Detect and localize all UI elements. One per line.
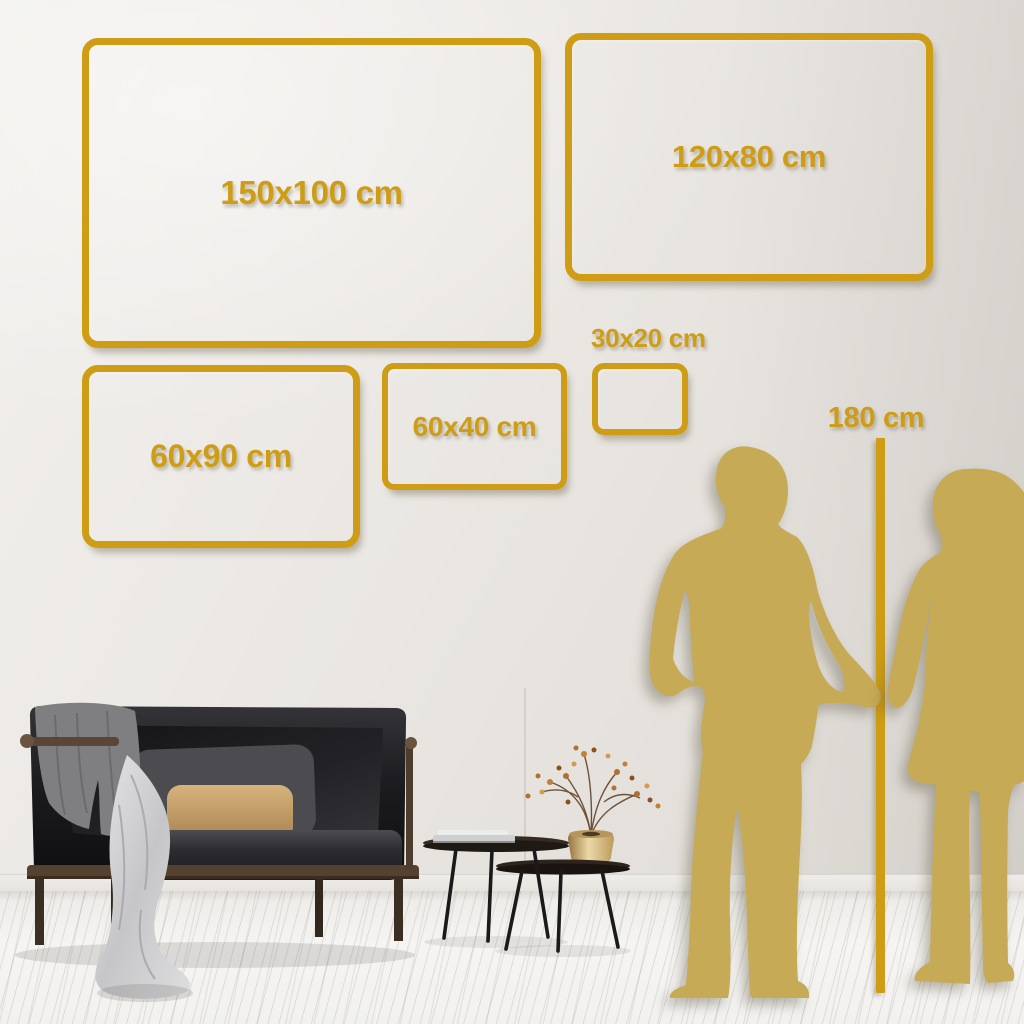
man-silhouette [648, 441, 892, 1001]
sofa-leg [35, 879, 44, 945]
plant-flowers [526, 746, 661, 809]
sofa-leg [394, 879, 403, 941]
size-label-30x20: 30x20 cm [591, 323, 706, 354]
size-label-120x80: 120x80 cm [672, 139, 826, 175]
books-stack [433, 830, 515, 843]
size-guide-scene: 150x100 cm 120x80 cm 60x90 cm 60x40 cm 3… [0, 0, 1024, 1024]
woman-silhouette [885, 465, 1024, 997]
sofa-back-dowel [23, 737, 119, 746]
size-frame-60x40: 60x40 cm [382, 363, 567, 490]
size-frame-150x100: 150x100 cm [82, 38, 541, 348]
sofa-leg [315, 879, 323, 937]
sofa [15, 695, 420, 1010]
height-ruler-label: 180 cm [815, 402, 937, 435]
size-frame-30x20 [592, 363, 688, 435]
size-label-60x90: 60x90 cm [150, 438, 292, 475]
sofa-arm-post [406, 743, 413, 869]
size-label-60x40: 60x40 cm [413, 411, 537, 443]
sofa-shadow [15, 942, 415, 968]
size-frame-120x80: 120x80 cm [565, 33, 933, 281]
size-label-150x100: 150x100 cm [220, 174, 402, 212]
size-frame-60x90: 60x90 cm [82, 365, 360, 548]
brass-vase [568, 834, 614, 863]
